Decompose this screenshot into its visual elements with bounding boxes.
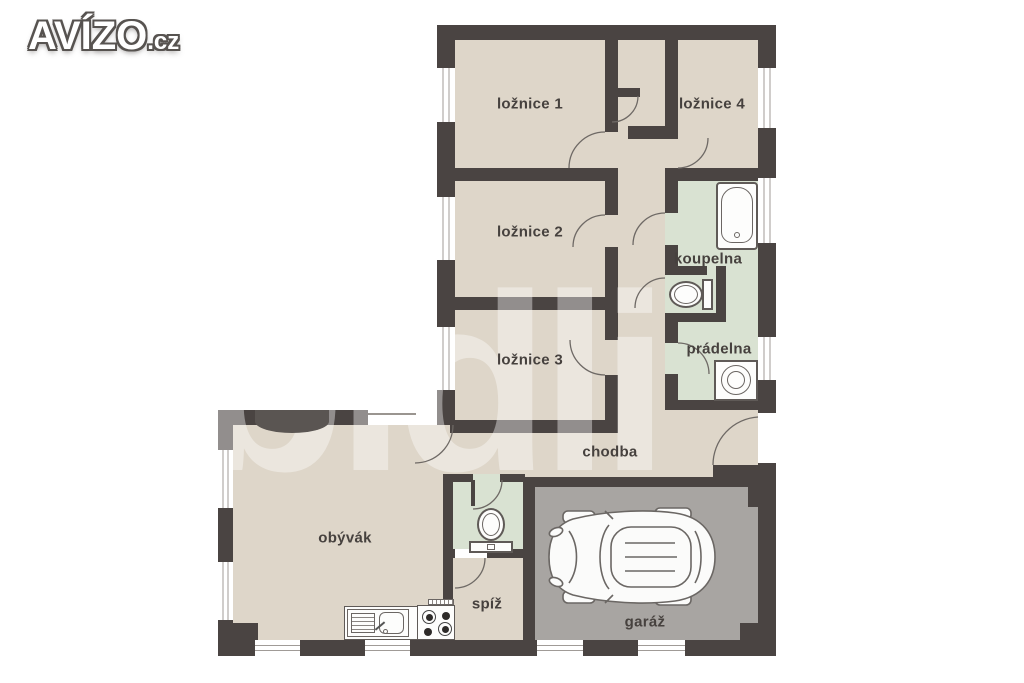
- room-label-loznice1: ložnice 1: [497, 96, 563, 113]
- toilet-button: [487, 544, 495, 550]
- washer-drum-inner: [727, 371, 745, 389]
- logo-tld-text: .cz: [147, 28, 179, 55]
- door-arc: [455, 558, 485, 588]
- room-label-loznice3: ložnice 3: [497, 352, 563, 369]
- toilet-tank: [702, 279, 713, 310]
- floor-plan: bidli: [0, 0, 1024, 683]
- toilet-bowl: [674, 285, 698, 304]
- door-arc: [713, 417, 758, 465]
- door-arc: [678, 138, 708, 168]
- room-label-pradelna: prádelna: [687, 341, 752, 358]
- stove-burner: [422, 610, 436, 624]
- door-arc: [633, 213, 665, 245]
- room-label-garaz: garáž: [625, 614, 666, 631]
- room-label-loznice2: ložnice 2: [497, 224, 563, 241]
- door-arc: [570, 340, 605, 375]
- logo-brand-text: AVÍZO: [28, 14, 147, 58]
- room-label-spiz: spíž: [472, 596, 502, 613]
- room-label-chodba: chodba: [582, 444, 637, 461]
- stove-burner: [438, 622, 452, 636]
- car-icon: [545, 505, 725, 610]
- sink-drainboard: [351, 613, 375, 633]
- stove-burner: [424, 628, 432, 636]
- room-label-obyvak: obývák: [318, 530, 372, 547]
- stove-vent: [428, 599, 454, 605]
- room-label-loznice4: ložnice 4: [679, 96, 745, 113]
- door-arc: [573, 215, 605, 247]
- bathtub-drain: [734, 232, 740, 238]
- door-arc: [612, 96, 638, 122]
- sink-faucet: [383, 629, 388, 634]
- door-arc: [569, 132, 605, 168]
- door-arc: [473, 480, 502, 509]
- door-arc: [635, 278, 665, 308]
- toilet-bowl: [482, 513, 500, 536]
- door-arc: [415, 425, 453, 463]
- stove-burner: [442, 612, 450, 620]
- avizo-logo: AVÍZO.cz: [28, 14, 179, 59]
- room-label-koupelna: koupelna: [674, 251, 742, 268]
